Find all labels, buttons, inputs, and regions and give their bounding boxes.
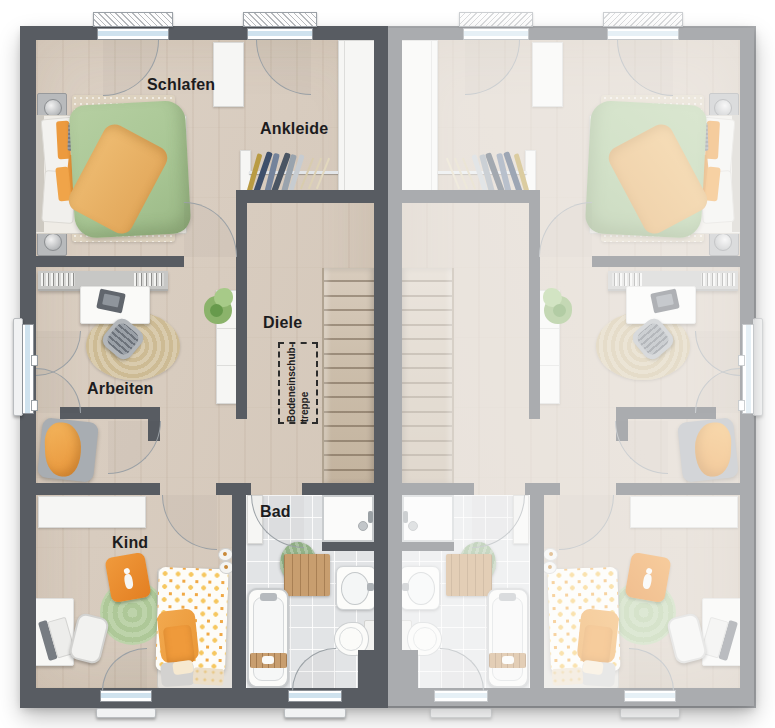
- sideboard-seam: [539, 365, 559, 366]
- wall-bad-niche-stub: [402, 650, 418, 688]
- wardrobe-seam: [344, 41, 345, 191]
- house-unit: Schlafen Ankleide Diele Arbeiten Kind Ba…: [388, 12, 756, 718]
- window-sill: [753, 318, 763, 416]
- wall-diele-vertical: [236, 190, 247, 419]
- small-pillow: [172, 660, 194, 676]
- wall-bad-top-right: [402, 483, 474, 495]
- tall-wardrobe: [338, 40, 376, 192]
- party-wall: [374, 26, 388, 708]
- shower-half-wall: [402, 542, 454, 551]
- shower: [322, 495, 374, 542]
- kids-shelf: [630, 496, 738, 528]
- bathtub: [487, 588, 529, 688]
- window-sill: [430, 708, 492, 718]
- shower-faucet: [403, 511, 408, 523]
- books: [701, 273, 735, 286]
- house-unit: Schlafen Ankleide Diele Arbeiten Kind Ba…: [20, 12, 388, 718]
- armchair: [677, 417, 739, 483]
- wall-kind-top-right: [216, 483, 232, 495]
- doll-head: [646, 568, 653, 575]
- books: [660, 273, 686, 286]
- soap: [502, 656, 514, 664]
- window: [624, 690, 676, 702]
- slipper-strap: [224, 565, 228, 569]
- window-lintel: [93, 12, 173, 27]
- wall-kind-top-left: [36, 483, 160, 495]
- window: [100, 690, 152, 702]
- sink-basin: [407, 572, 435, 605]
- window-lintel: [459, 12, 533, 27]
- staircase: [322, 268, 376, 484]
- orange-bed-pillow: [163, 624, 195, 665]
- beige-pillow: [192, 667, 224, 686]
- left-house-unit: Schlafen Ankleide Diele Arbeiten Kind Ba…: [20, 12, 388, 718]
- tub-caddy: [489, 653, 526, 668]
- toilet-seat: [339, 627, 363, 651]
- wall-diele-vertical: [529, 190, 540, 419]
- window: [247, 28, 313, 40]
- orange-blanket: [694, 422, 732, 477]
- tub-faucet: [499, 593, 516, 601]
- shower: [402, 495, 454, 542]
- room-label-ankleide: Ankleide: [260, 120, 328, 138]
- tub-interior: [492, 597, 523, 681]
- outer-wall-top: [20, 26, 388, 40]
- beige-pillow: [551, 667, 583, 686]
- sink-basin: [341, 572, 369, 605]
- staircase: [400, 268, 454, 484]
- window: [607, 28, 679, 40]
- wall-schlafen-bottom: [36, 256, 184, 267]
- attic-hatch-annotation: Bodeneinschub- treppe: [278, 342, 318, 424]
- room-label-kind: Kind: [112, 534, 148, 552]
- double-bed: [588, 103, 741, 244]
- attic-hatch-label: Bodeneinschub- treppe: [286, 344, 311, 422]
- slipper-strap: [548, 565, 552, 569]
- window: [463, 28, 529, 40]
- shower-half-wall: [322, 542, 374, 551]
- wall-kind-top-left: [616, 483, 740, 495]
- sink: [400, 566, 440, 610]
- small-pillow: [582, 660, 604, 676]
- slipper-strap: [223, 552, 228, 557]
- tub-interior: [253, 597, 284, 681]
- kids-bed: [539, 568, 619, 688]
- right-house-unit-mirrored: Schlafen Ankleide Diele Arbeiten Kind Ba…: [388, 12, 756, 718]
- toilet-seat: [413, 627, 437, 651]
- wardrobe-seam: [431, 41, 432, 191]
- doll: [642, 573, 652, 589]
- window: [434, 690, 488, 702]
- books: [90, 273, 116, 286]
- wall-kind-top-right: [544, 483, 560, 495]
- plant-foliage: [553, 304, 566, 317]
- outer-wall-top: [388, 26, 756, 40]
- wall-bad-niche-stub: [358, 650, 374, 688]
- sideboard-seam: [217, 365, 237, 366]
- room-label-bad: Bad: [260, 503, 291, 521]
- floor-cushion-with-doll: [624, 552, 671, 603]
- wardrobe: [532, 42, 563, 107]
- sideboard-seam: [217, 328, 237, 329]
- floor-cushion-with-doll: [104, 552, 151, 603]
- window-sill: [620, 708, 680, 718]
- soap: [262, 656, 274, 664]
- books: [41, 273, 75, 286]
- room-label-schlafen: Schlafen: [147, 76, 215, 94]
- window-sill: [284, 708, 346, 718]
- room-label-arbeiten: Arbeiten: [87, 380, 154, 398]
- window: [97, 28, 169, 40]
- sink-faucet: [402, 583, 409, 591]
- plant-foliage: [210, 304, 223, 317]
- kids-bed: [157, 568, 237, 688]
- tub-faucet: [260, 593, 277, 601]
- party-wall: [388, 26, 402, 708]
- double-bed: [35, 103, 188, 244]
- wall-bad-top-right: [302, 483, 374, 495]
- window-sill: [96, 708, 156, 718]
- wooden-bath-mat: [446, 554, 492, 596]
- books: [134, 273, 164, 286]
- sink: [336, 566, 376, 610]
- room-label-diele: Diele: [263, 314, 302, 332]
- orange-blanket: [44, 422, 82, 477]
- potted-plant: [538, 288, 572, 326]
- floor-plan-canvas: Schlafen Ankleide Diele Arbeiten Kind Ba…: [0, 0, 775, 728]
- sideboard-seam: [539, 328, 559, 329]
- laptop-keyboard: [656, 293, 674, 307]
- window-lintel: [243, 12, 317, 27]
- slipper-strap: [549, 552, 554, 557]
- shower-faucet: [368, 511, 373, 523]
- laptop-keyboard: [102, 293, 120, 307]
- wall-kind-bad: [530, 483, 544, 688]
- wall-bad-top-left: [246, 483, 251, 495]
- wooden-bath-mat: [284, 554, 330, 596]
- window-lintel: [603, 12, 683, 27]
- books: [612, 273, 642, 286]
- wall-ankleide-bottom: [402, 190, 540, 203]
- wardrobe: [213, 42, 244, 107]
- potted-plant: [204, 288, 238, 326]
- wall-ankleide-bottom: [236, 190, 374, 203]
- tub-caddy: [250, 653, 287, 668]
- armchair: [37, 417, 99, 483]
- bathtub: [247, 588, 289, 688]
- wall-kind-bad: [232, 483, 246, 688]
- kids-shelf: [38, 496, 146, 528]
- wall-schlafen-bottom: [592, 256, 740, 267]
- attic-hatch-label-line1: Bodeneinschub-: [286, 344, 299, 422]
- window: [288, 690, 342, 702]
- wall-bad-top-left: [525, 483, 530, 495]
- doll: [123, 573, 133, 589]
- shower-drain: [408, 521, 418, 531]
- tall-wardrobe: [400, 40, 438, 192]
- sink-faucet: [367, 583, 374, 591]
- attic-hatch-label-line2: treppe: [298, 344, 311, 422]
- shower-drain: [358, 521, 368, 531]
